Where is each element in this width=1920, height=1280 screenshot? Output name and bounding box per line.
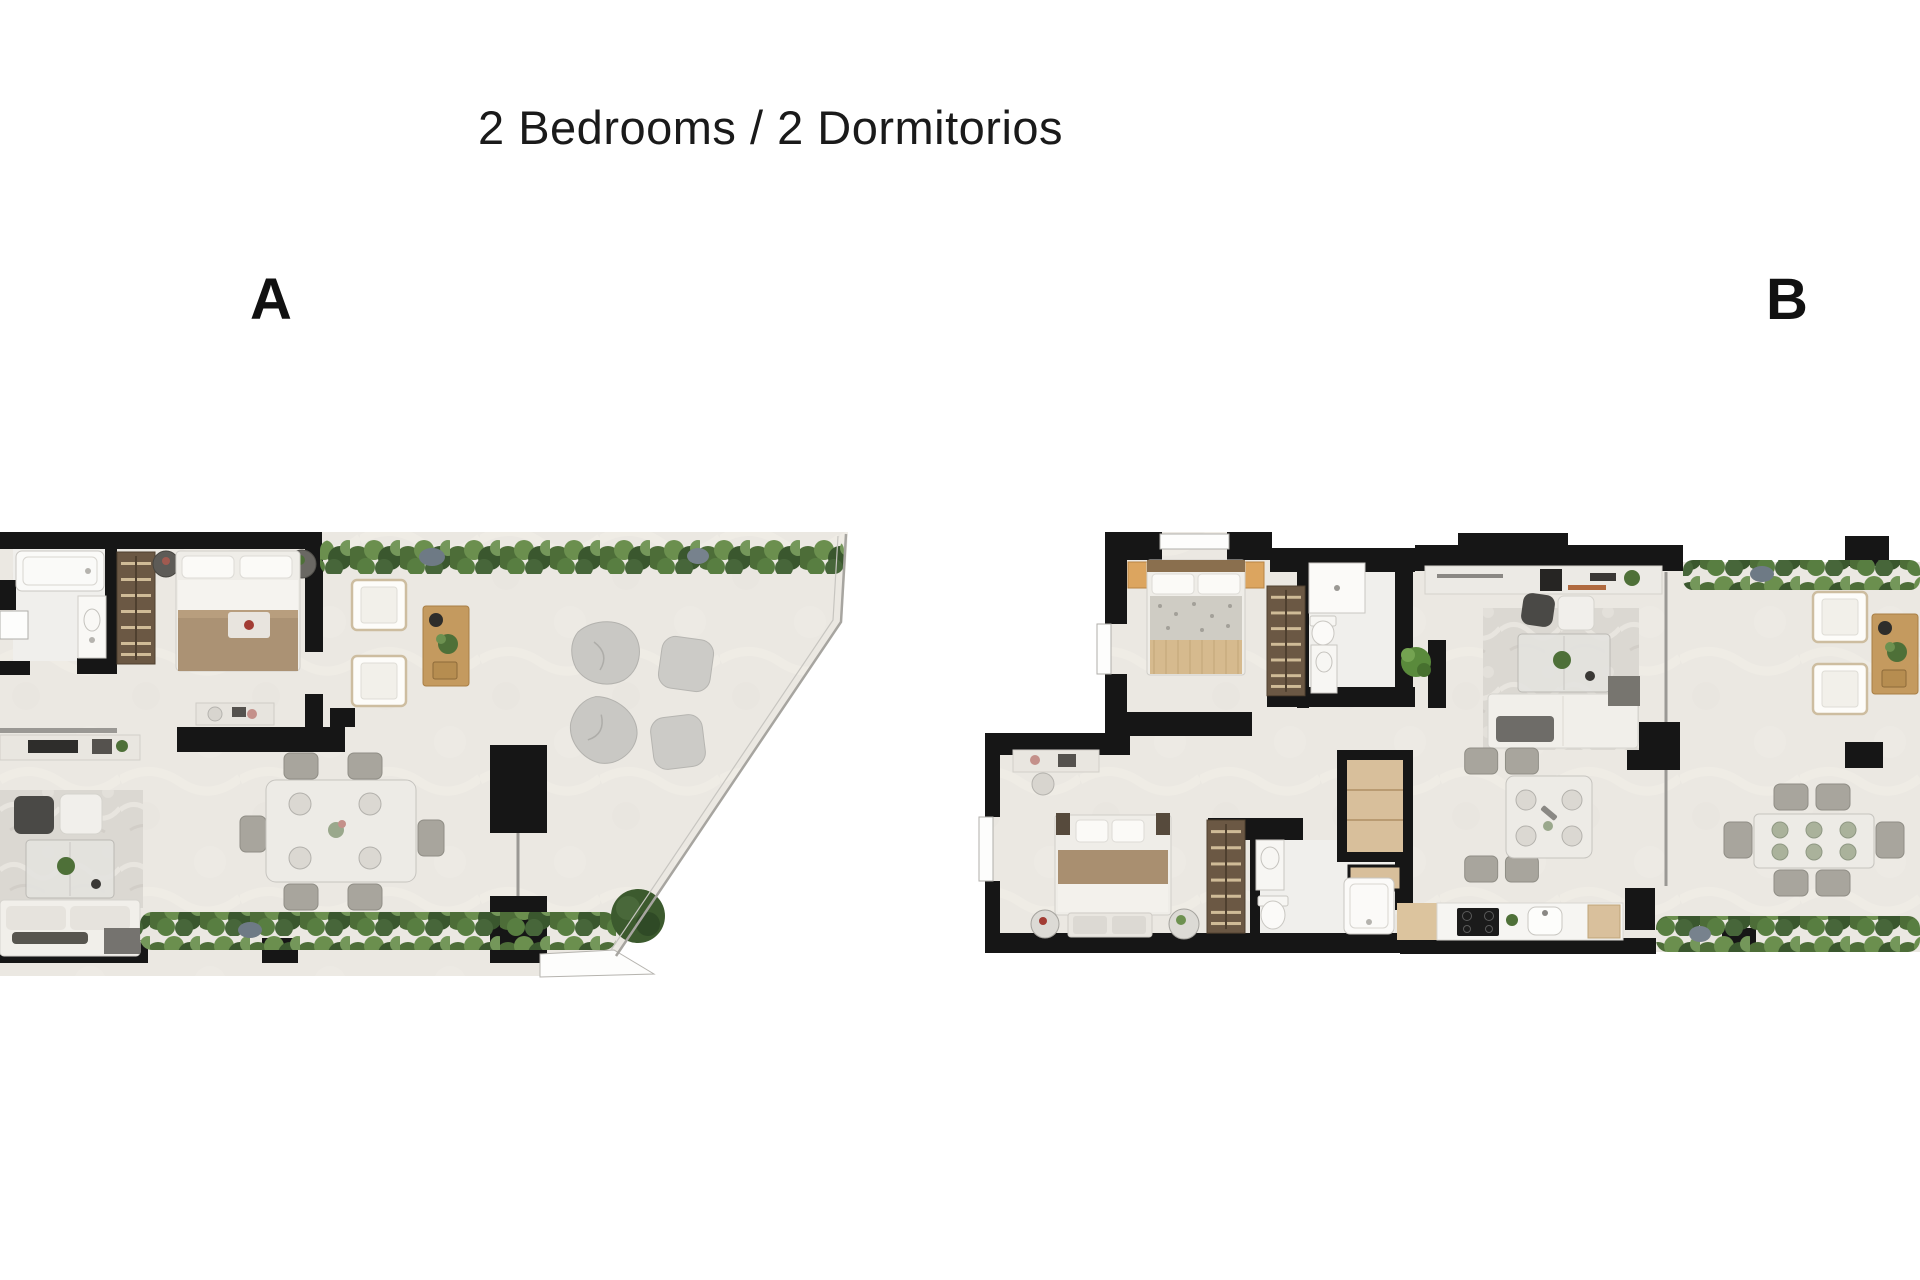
unit-b-kitchen xyxy=(1397,903,1623,940)
unit-a-armchair xyxy=(60,794,102,834)
terrace-a-lounger-2 xyxy=(352,656,406,706)
terrace-b-lounger-2 xyxy=(1813,664,1867,714)
unit-b-kitchen-sink xyxy=(1528,907,1562,935)
floor-plan-a xyxy=(0,532,848,977)
unit-a-half-wall xyxy=(0,728,117,733)
unit-a-armchair-dark xyxy=(14,796,54,834)
terrace-a-bottom-hedge xyxy=(140,912,616,950)
unit-b-bed-bench xyxy=(1068,913,1152,937)
unit-b-cooktop xyxy=(1457,908,1499,936)
unit-b-wardrobe-2 xyxy=(1207,820,1245,933)
page-title: 2 Bedrooms / 2 Dormitorios xyxy=(478,100,1063,155)
unit-b-hall-plant xyxy=(1401,647,1431,677)
unit-b-label: B xyxy=(1766,266,1808,333)
unit-b-bed-1 xyxy=(1147,560,1245,675)
unit-a-label: A xyxy=(250,266,292,333)
floor-plan-sheet: 2 Bedrooms / 2 Dormitorios A B xyxy=(0,0,1920,1280)
terrace-a-top-hedge xyxy=(320,540,844,574)
unit-a-window-box xyxy=(0,611,28,639)
floor-plans-canvas xyxy=(0,520,1920,1000)
unit-b-bed-2 xyxy=(1055,813,1171,915)
unit-b-closet xyxy=(1337,750,1413,890)
unit-b-cushion-dark xyxy=(1520,592,1556,628)
terrace-a-pouf-4 xyxy=(649,713,707,771)
floor-plan-b xyxy=(979,532,1920,954)
terrace-a-side-table xyxy=(423,606,469,686)
terrace-a-pouf-2 xyxy=(657,635,716,694)
terrace-a-pouf-1 xyxy=(572,622,640,684)
unit-b-tv-console xyxy=(1425,566,1662,594)
terrace-b-lounger-1 xyxy=(1813,592,1867,642)
terrace-a-lounger-1 xyxy=(352,580,406,630)
unit-b-side-table xyxy=(1608,676,1640,706)
unit-a-tv-console xyxy=(0,735,140,760)
terrace-b-side-table xyxy=(1872,614,1918,694)
unit-a-sofa xyxy=(0,900,140,956)
unit-a-coffee-table xyxy=(26,840,114,898)
unit-a-bed xyxy=(176,551,300,671)
unit-a-dressing-table xyxy=(196,703,274,725)
unit-b-wardrobe-1 xyxy=(1267,586,1305,696)
unit-b-armchair xyxy=(1558,596,1594,630)
unit-a-wardrobe xyxy=(117,552,155,664)
terrace-b-top-hedge xyxy=(1683,560,1920,590)
terrace-a-planter xyxy=(540,950,654,977)
unit-b-coffee-table xyxy=(1518,634,1610,692)
